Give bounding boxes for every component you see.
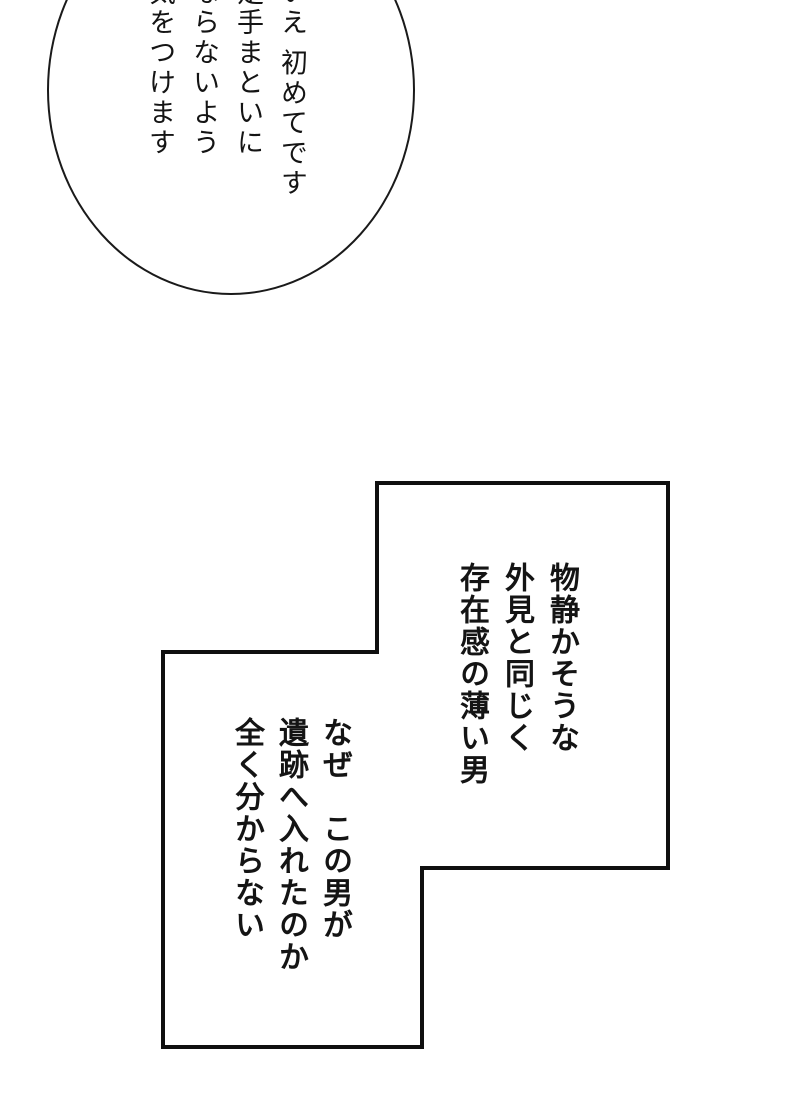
narration-bottom-column-1: なぜ この男が — [312, 717, 356, 999]
narration-top-column-2: 外見と同じく — [494, 562, 539, 802]
narration-bottom: なぜ この男が 遺跡へ入れたのか 全く分からない — [224, 717, 356, 999]
panel-frame — [0, 0, 800, 1111]
narration-bottom-column-3: 全く分からない — [224, 717, 268, 999]
narration-top-column-1: 物静かそうな — [539, 562, 584, 802]
narration-bottom-column-2: 遺跡へ入れたのか — [268, 717, 312, 999]
narration-top: 物静かそうな 外見と同じく 存在感の薄い男 — [449, 562, 584, 802]
narration-top-column-3: 存在感の薄い男 — [449, 562, 494, 802]
manga-page: いえ 初めてです 足手まといに ならないよう 気をつけます 物静かそうな 外見と… — [0, 0, 800, 1111]
